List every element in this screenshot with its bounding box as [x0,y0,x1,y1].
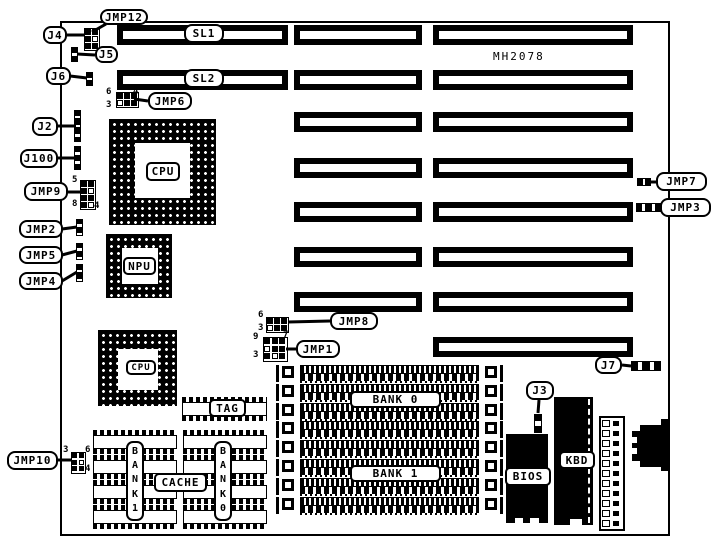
simm-clip-right [500,403,503,420]
j7-jumper-pin [655,361,661,371]
simm-clip-left-latch [282,404,294,416]
cache-bank1-label: B A N K 1 [126,441,144,521]
jmp8-block-pin [274,318,280,324]
jmp1-block-pin [272,346,278,352]
simm-clip-left [276,365,279,382]
simm-clip-right-latch [485,498,497,510]
simm-clip-left-latch [282,460,294,472]
simm-bank-label: BANK 1 [350,465,441,482]
expansion-slot [433,247,633,267]
power-connector-pin [602,500,610,507]
pin-number: 7 [283,331,291,340]
simm-clip-left-latch [282,479,294,491]
chip-notch [515,518,523,525]
callout-j2: J2 [32,117,58,136]
callout-j5: J5 [95,46,118,63]
jmp7-jumper-pin [646,178,651,186]
j3-jumper-pin [534,427,542,433]
bios-chip-label: BIOS [505,467,551,486]
expansion-slot [433,112,633,132]
cpu-socket-label: CPU [146,162,180,181]
simm-socket-baseline [300,437,479,439]
simm-clip-right-latch [485,366,497,378]
simm-clip-right [500,365,503,382]
power-connector-pin-pad [613,471,619,476]
jmp10-block-pin [79,460,84,465]
pin-number: 3 [258,324,266,333]
power-connector-pin-pad [613,441,619,446]
callout-sl2: SL2 [184,69,224,88]
tag-chip-label: TAG [209,399,246,417]
power-connector-pin-pad [613,521,619,526]
j4-jmp12-block-pin [92,29,98,35]
jmp6-block-pin [117,93,123,99]
power-connector-pin-pad [613,431,619,436]
pin-number: 6 [106,88,114,97]
jmp9-block-pin [81,195,87,201]
jmp8-block-pin [267,325,273,331]
chip-notch [570,519,582,526]
chip-notch [530,518,539,525]
simm-clip-right [500,440,503,457]
simm-clip-right-latch [485,422,497,434]
simm-clip-left [276,459,279,476]
simm-socket-contacts [300,421,479,430]
power-connector-pin-pad [613,451,619,456]
jmp6-block-pin [131,100,137,106]
pin-number: 9 [253,333,261,342]
kbd-chip-label: KBD [559,451,595,469]
simm-clip-right-latch [485,479,497,491]
simm-socket-contacts [300,497,479,506]
pin-number: 5 [72,176,80,185]
dip-chip-pins-bottom [93,524,177,529]
callout-j7: J7 [595,356,622,374]
power-connector-pin [602,450,610,457]
cache-label: CACHE [154,473,207,492]
simm-socket-teeth [300,487,479,494]
simm-clip-right [500,459,503,476]
jmp10-block-pin [72,466,77,471]
simm-clip-right [500,384,503,401]
jmp10-block-pin [72,460,77,465]
expansion-slot [433,158,633,178]
din-connector-notch [632,437,637,443]
jmp9-block-pin [88,202,94,208]
power-connector-pin-pad [613,421,619,426]
simm-clip-left [276,440,279,457]
power-connector-pin-pad [613,461,619,466]
callout-jmp4: JMP4 [19,272,63,290]
jmp4-jumper-pin [76,278,83,283]
pin-number: 4 [133,88,141,97]
jmp10-block-pin [79,466,84,471]
jmp5-jumper-pin [76,256,83,260]
jmp9-block-pin [81,202,87,208]
power-connector-pin [602,490,610,497]
jmp6-block-pin [124,100,130,106]
callout-jmp10: JMP10 [7,451,58,470]
j4-jmp12-block-pin [85,43,91,49]
keyboard-din-connector [640,425,661,467]
jmp6-block-pin [117,100,123,106]
dip-chip-pins-bottom [183,524,267,529]
pin-number: 8 [72,200,80,209]
simm-bank-label: BANK 0 [350,391,441,408]
power-connector-pin-pad [613,501,619,506]
simm-clip-left [276,403,279,420]
callout-j4: J4 [43,26,67,44]
simm-clip-right [500,497,503,514]
pin-number: 4 [94,202,102,211]
expansion-slot [433,202,633,222]
callout-sl1: SL1 [184,24,224,43]
callout-jmp12: JMP12 [100,9,148,25]
pin-number: 3 [253,351,261,360]
expansion-slot [294,202,422,222]
j2-header-pin [74,138,81,143]
expansion-slot [294,112,422,132]
simm-clip-left [276,421,279,438]
simm-clip-left [276,384,279,401]
simm-socket-teeth [300,430,479,437]
callout-j6: J6 [46,67,71,85]
callout-j100: J100 [20,149,58,168]
simm-clip-left-latch [282,422,294,434]
j5-jumper-pin [71,57,78,62]
cpu2-socket-label: CPU [126,360,156,375]
simm-clip-right [500,478,503,495]
jmp1-block-pin [264,338,270,344]
jmp2-jumper-pin [76,232,83,236]
expansion-slot [294,25,422,45]
simm-clip-right-latch [485,404,497,416]
simm-socket-baseline [300,494,479,496]
expansion-slot [294,70,422,90]
expansion-slot [433,292,633,312]
pin-number: 6 [85,446,93,455]
npu-socket-label: NPU [123,257,156,275]
j4-jmp12-block-pin [85,36,91,42]
power-connector-pin [602,470,610,477]
jmp9-block-pin [88,195,94,201]
board-model-text: MH2078 [493,50,555,64]
simm-socket-teeth [300,374,479,381]
simm-socket-contacts [300,365,479,374]
keyboard-din-connector [632,431,641,461]
callout-jmp1: JMP1 [296,340,340,358]
expansion-slot [294,158,422,178]
jmp9-block-pin [81,188,87,194]
simm-socket-teeth [300,506,479,513]
jmp10-block-pin [72,453,77,458]
power-connector-pin [602,420,610,427]
simm-clip-left-latch [282,441,294,453]
jmp1-block-pin [279,346,285,352]
power-connector-pin [602,520,610,527]
simm-clip-left-latch [282,385,294,397]
power-connector-pin-pad [613,491,619,496]
simm-clip-left [276,478,279,495]
jmp10-block-pin [79,453,84,458]
motherboard-diagram: MH2078 CPUNPUCPUBANK 0BANK 1B A N K 1B A… [0,0,724,546]
power-connector-pin [602,430,610,437]
jmp6-block-pin [124,93,130,99]
simm-clip-right-latch [485,460,497,472]
callout-jmp6: JMP6 [148,92,192,110]
jmp8-block-pin [267,318,273,324]
expansion-slot [294,292,422,312]
simm-clip-left-latch [282,366,294,378]
jmp1-block-pin [279,353,285,359]
power-connector-pin-pad [613,481,619,486]
jmp1-block-pin [272,338,278,344]
jmp8-block-pin [274,325,280,331]
simm-socket-contacts [300,440,479,449]
jmp9-block-pin [81,181,87,187]
j100-header-pin [74,165,81,170]
simm-socket-baseline [300,381,479,383]
callout-jmp2: JMP2 [19,220,63,238]
power-connector-pin [602,480,610,487]
jmp8-block-pin [281,318,287,324]
simm-socket-baseline [300,456,479,458]
pin-number: 6 [258,311,266,320]
simm-clip-left [276,497,279,514]
din-connector-notch [632,448,637,454]
simm-clip-right-latch [485,385,497,397]
simm-socket-teeth [300,449,479,456]
j4-jmp12-block-pin [85,29,91,35]
j6-jumper-pin [86,81,93,86]
pin-number: 3 [63,446,71,455]
simm-socket-teeth [300,412,479,419]
callout-jmp8: JMP8 [330,312,378,330]
pin-number: 3 [106,101,114,110]
j4-jmp12-block-pin [92,36,98,42]
power-connector-pin [602,460,610,467]
simm-clip-left-latch [282,498,294,510]
callout-j3: J3 [526,381,554,400]
power-connector-pin [602,440,610,447]
jmp9-block-pin [88,181,94,187]
jmp9-block-pin [88,188,94,194]
power-connector-pin [602,510,610,517]
expansion-slot [433,70,633,90]
callout-jmp7: JMP7 [656,172,707,191]
cache-bank0-label: B A N K 0 [214,441,232,521]
simm-socket-baseline [300,513,479,515]
expansion-slot [294,247,422,267]
jmp1-block-pin [272,353,278,359]
jmp1-block-pin [264,346,270,352]
keyboard-din-connector [661,419,669,471]
power-connector-pin-pad [613,511,619,516]
jmp1-block-pin [264,353,270,359]
callout-jmp3: JMP3 [660,198,711,217]
callout-jmp5: JMP5 [19,246,63,264]
expansion-slot [433,25,633,45]
simm-clip-right-latch [485,441,497,453]
pin-number: 4 [85,465,93,474]
simm-clip-right [500,421,503,438]
callout-jmp9: JMP9 [24,182,68,201]
expansion-slot [433,337,633,357]
